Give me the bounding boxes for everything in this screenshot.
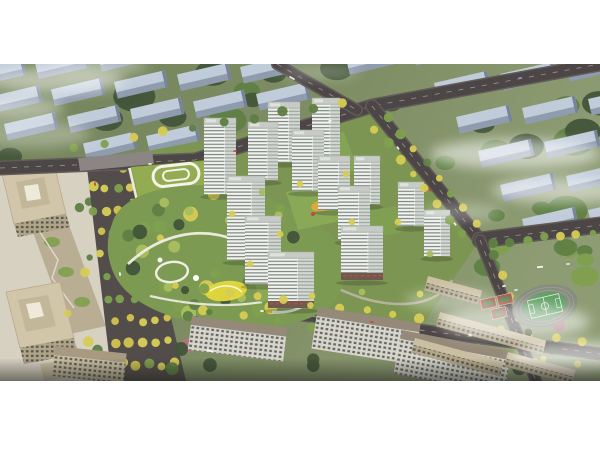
boulevard-tree	[114, 184, 123, 193]
tower-corner	[367, 232, 368, 280]
boulevard-tree	[123, 337, 133, 347]
boulevard-tree	[103, 273, 110, 280]
tower-roof-unit	[294, 131, 304, 134]
tower-shadow	[421, 256, 453, 261]
street-tree	[423, 158, 431, 166]
tower-corner	[440, 216, 441, 256]
tower-roof-unit	[400, 183, 408, 186]
boulevard-tree	[151, 338, 160, 347]
street-tree	[250, 114, 259, 123]
street-tree	[69, 143, 78, 152]
street-tree	[384, 113, 393, 122]
tower-roof-unit	[247, 217, 259, 220]
cluster-tree	[297, 181, 304, 188]
park-tree	[198, 305, 208, 315]
street-tree	[254, 292, 262, 300]
plaza-tree	[83, 336, 94, 347]
tower-roof-unit	[206, 119, 216, 122]
cloud	[422, 204, 502, 220]
tower-side-facade	[368, 232, 383, 280]
boulevard-tree	[139, 318, 147, 326]
tower-corner	[288, 108, 289, 162]
tower-shadow	[395, 226, 427, 231]
tower-corner	[312, 136, 313, 191]
street-tree	[279, 295, 288, 304]
street-tree	[590, 230, 596, 236]
street-tree	[410, 171, 416, 177]
street-tree	[307, 302, 314, 309]
retail-awning	[361, 275, 364, 276]
street-tree	[395, 129, 405, 139]
tower-roof-unit	[356, 157, 364, 160]
street-tree	[100, 140, 108, 148]
street-tree	[436, 175, 443, 182]
tower-front-facade	[248, 128, 267, 180]
park-tree	[185, 207, 194, 216]
street-tree	[189, 124, 196, 131]
tower-roof-unit	[320, 157, 330, 160]
park-tree	[164, 283, 173, 292]
street-tree	[414, 313, 424, 323]
tower-side-facade	[371, 162, 380, 204]
tower-corner	[267, 128, 268, 180]
boulevard-tree	[138, 338, 148, 348]
retail-awning	[276, 303, 279, 304]
south-tree	[174, 342, 188, 356]
plaza-tree	[86, 254, 92, 260]
cluster-tree	[349, 219, 356, 226]
boulevard-tree	[89, 207, 98, 216]
cluster-tree	[259, 189, 266, 196]
tower-side-facade	[415, 188, 424, 226]
cluster-tree	[309, 293, 316, 300]
street-tree	[498, 271, 507, 280]
cloud	[405, 290, 495, 310]
boulevard-tree	[100, 185, 108, 193]
street-tree	[172, 282, 179, 289]
tower-front-facade	[424, 216, 441, 256]
boulevard-tree	[89, 181, 99, 191]
park-tree	[181, 286, 189, 294]
retail-awning	[379, 275, 382, 276]
cluster-tree	[229, 211, 236, 218]
street-tree	[220, 118, 229, 127]
street-tree	[488, 238, 498, 248]
cluster-tree	[427, 251, 434, 258]
tower-front-facade	[341, 232, 368, 280]
cluster-tree	[343, 171, 350, 178]
tower-side-facade	[330, 104, 340, 156]
street-tree	[473, 220, 481, 228]
office-tower-1-core	[24, 184, 41, 201]
tower-roof-unit	[270, 103, 280, 106]
boulevard-tree	[96, 250, 104, 258]
park-tree	[133, 225, 148, 240]
street-tree	[240, 311, 248, 319]
boulevard-tree	[164, 336, 171, 343]
street-tree	[523, 236, 532, 245]
retail-awning	[355, 275, 358, 276]
cloud	[440, 305, 590, 339]
park-canopy	[158, 258, 163, 263]
tower-corner	[330, 104, 331, 156]
tower-corner	[370, 162, 371, 204]
retail-awning	[288, 303, 291, 304]
bottom-edge-fade	[0, 358, 600, 381]
tower-front-facade	[245, 222, 268, 284]
tower-roof-unit	[270, 253, 285, 256]
park-tree	[122, 230, 134, 242]
street-tree	[129, 133, 138, 142]
street-tree	[458, 229, 467, 238]
cluster-tree	[359, 289, 366, 296]
retail-awning	[294, 303, 297, 304]
tower-corner	[414, 188, 415, 226]
boulevard-tree	[115, 295, 124, 304]
plaza-tree	[64, 310, 71, 317]
boulevard-tree	[111, 339, 121, 349]
retail-strip	[341, 273, 383, 280]
podium-lawn	[74, 297, 90, 307]
car	[148, 163, 151, 165]
street-tree	[447, 190, 455, 198]
cluster-tree	[395, 219, 402, 226]
park-tree	[210, 268, 220, 278]
tower-shadow	[262, 308, 319, 313]
street-tree	[338, 98, 347, 107]
tower-front-facade	[204, 124, 224, 194]
street-tree	[370, 126, 378, 134]
car	[260, 310, 264, 312]
tower-roof-unit	[250, 123, 260, 126]
retail-awning	[373, 275, 376, 276]
cluster-tree	[247, 261, 254, 268]
street-tree	[274, 317, 280, 323]
tower-roof-unit	[343, 227, 356, 230]
tower-roof-unit	[340, 187, 350, 190]
tree-cluster	[571, 266, 599, 286]
street-tree	[206, 309, 212, 315]
street-tree	[389, 311, 396, 318]
podium-lawn	[58, 267, 74, 277]
car	[566, 263, 570, 265]
tower-side-facade	[297, 258, 314, 308]
street-tree	[396, 155, 406, 165]
boulevard-tree	[102, 207, 111, 216]
cloud	[280, 65, 360, 79]
boulevard-tree	[127, 314, 134, 321]
tower-side-facade	[267, 128, 278, 180]
tree-cluster	[554, 239, 578, 256]
park-tree	[153, 220, 166, 233]
street-tree	[225, 288, 234, 297]
park-tree	[159, 198, 169, 208]
street-tree	[420, 184, 428, 192]
plaza-tree	[80, 267, 90, 277]
street-tree	[364, 306, 371, 313]
street-tree	[540, 232, 548, 240]
boulevard-tree	[111, 317, 119, 325]
park-canopy	[193, 275, 199, 281]
retail-awning	[270, 303, 273, 304]
tower-roof-unit	[314, 99, 323, 102]
aerial-rendering-photo	[0, 64, 600, 381]
cloud	[430, 139, 600, 169]
tower-front-facade	[318, 162, 338, 210]
street-tree	[277, 106, 287, 116]
scene-svg	[0, 64, 600, 381]
park-tree	[287, 231, 300, 244]
street-tree	[556, 232, 565, 241]
retail-awning	[367, 275, 370, 276]
residential-tower	[336, 226, 388, 286]
boulevard-tree	[104, 296, 112, 304]
tower-corner	[224, 124, 225, 194]
boulevard-tree	[98, 228, 105, 235]
retail-awning	[300, 303, 303, 304]
plaza-tree	[75, 203, 84, 212]
street-tree	[309, 104, 318, 113]
retail-awning	[343, 275, 346, 276]
street-tree	[199, 283, 209, 293]
street-tree	[158, 126, 168, 136]
street-tree	[174, 302, 183, 311]
retail-strip	[268, 301, 314, 308]
street-tree	[571, 230, 580, 239]
street-tree	[505, 238, 514, 247]
tower-shadow	[336, 280, 388, 285]
tree-cluster	[576, 253, 594, 266]
street-tree	[410, 145, 417, 152]
street-tree	[489, 250, 499, 260]
park-tree	[173, 219, 184, 230]
retail-awning	[349, 275, 352, 276]
tower-roof-unit	[229, 177, 241, 180]
cluster-tree	[277, 231, 284, 238]
boulevard-tree	[151, 316, 159, 324]
street-tree	[384, 138, 394, 148]
park-tree	[168, 241, 180, 253]
tower-corner	[297, 258, 298, 308]
